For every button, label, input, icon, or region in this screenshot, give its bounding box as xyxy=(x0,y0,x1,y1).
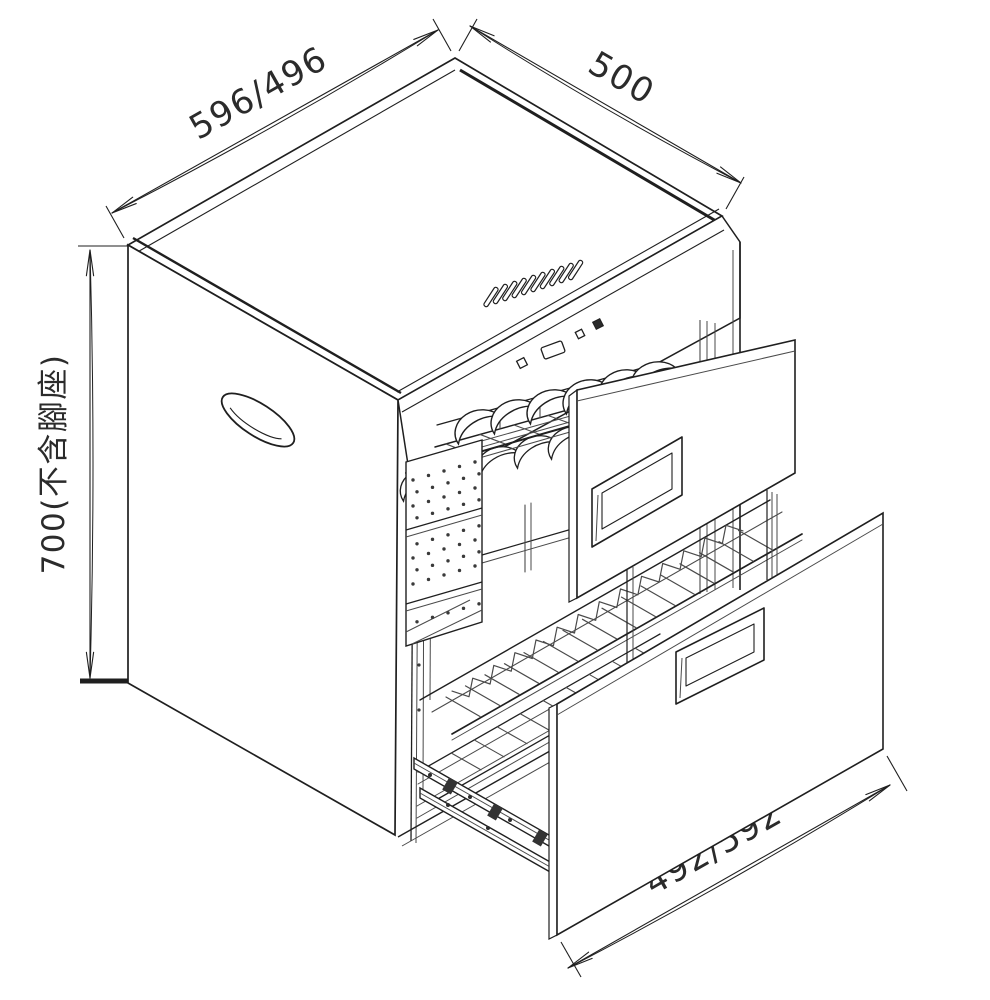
perforation-dot xyxy=(446,533,449,536)
perforation-dot xyxy=(427,500,430,503)
perforation-dot xyxy=(473,486,476,489)
cutlery-basket xyxy=(406,440,482,646)
perforation-dot xyxy=(462,477,465,480)
dimension-arrowhead xyxy=(869,785,890,801)
perforation-dot xyxy=(458,465,461,468)
perforation-dot xyxy=(427,552,430,555)
perforation-dot xyxy=(446,559,449,562)
rack-rung xyxy=(641,586,675,606)
perforation-dot xyxy=(473,564,476,567)
dimension-arrowhead xyxy=(112,204,136,213)
perforation-dot xyxy=(462,555,465,558)
perforation-dot xyxy=(446,481,449,484)
pin-hole xyxy=(417,708,420,711)
shelf-rung xyxy=(497,727,527,744)
rack-rung xyxy=(563,630,597,650)
extension-line xyxy=(459,19,477,51)
shelf-rung xyxy=(474,740,504,757)
perforation-dot xyxy=(462,607,465,610)
drawing-canvas: 596/496 500 700(不含腳座) 492/592 xyxy=(0,0,990,1000)
perforation-dot xyxy=(442,469,445,472)
rack-rung xyxy=(661,575,695,595)
perforation-dot xyxy=(415,542,418,545)
perforation-dot xyxy=(477,524,480,527)
perforation-dot xyxy=(477,602,480,605)
perforation-dot xyxy=(446,611,449,614)
rail-rivet xyxy=(486,826,490,830)
dimension-arrowhead xyxy=(717,173,741,183)
perforation-dot xyxy=(415,490,418,493)
perforation-dot xyxy=(462,529,465,532)
perforation-dot xyxy=(477,498,480,501)
dimension-arrowhead xyxy=(470,26,494,36)
shelf-rung xyxy=(520,714,550,731)
perforation-dot xyxy=(462,503,465,506)
perforation-dot xyxy=(458,491,461,494)
pin-hole xyxy=(417,663,420,666)
upper-drawer-edge-sliver xyxy=(569,390,577,602)
extension-line xyxy=(726,177,744,209)
shelf-rung xyxy=(451,753,481,770)
perforation-dot xyxy=(411,556,414,559)
dimension-arrowhead xyxy=(721,167,741,183)
rack-rung xyxy=(583,619,617,639)
rail-rivet xyxy=(428,773,432,777)
rail-rivet xyxy=(446,803,450,807)
rack-rung xyxy=(524,653,558,673)
rack-rung xyxy=(719,542,753,562)
dimension-label-top-depth: 500 xyxy=(581,44,661,113)
extension-line xyxy=(433,19,451,51)
dimension-arrowhead xyxy=(417,30,438,46)
perforation-dot xyxy=(427,578,430,581)
lower-drawer-edge-sliver xyxy=(549,704,557,939)
perforation-dot xyxy=(431,512,434,515)
perforation-dot xyxy=(415,568,418,571)
perforation-dot xyxy=(458,569,461,572)
perforation-dot xyxy=(411,504,414,507)
perforation-dot xyxy=(442,495,445,498)
dimension-label-height: 700(不含腳座) xyxy=(36,354,72,575)
perforation-dot xyxy=(477,472,480,475)
perforation-dot xyxy=(477,550,480,553)
dimension-arrowhead xyxy=(470,26,490,42)
perforation-dot xyxy=(442,573,445,576)
rack-rung xyxy=(680,564,714,584)
dimension-arrowhead xyxy=(866,785,890,795)
rail-rivet xyxy=(508,818,512,822)
perforation-dot xyxy=(411,582,414,585)
perforation-dot xyxy=(431,616,434,619)
perforation-dot xyxy=(431,538,434,541)
perforation-dot xyxy=(446,507,449,510)
perforation-dot xyxy=(473,460,476,463)
perforation-dot xyxy=(442,547,445,550)
dimension-arrowhead xyxy=(414,30,438,39)
extension-line xyxy=(561,942,581,977)
rack-rung xyxy=(505,664,539,684)
perforation-dot xyxy=(458,543,461,546)
rack-rung xyxy=(700,553,734,573)
perforation-dot xyxy=(411,478,414,481)
rail-rivet xyxy=(468,795,472,799)
perforation-dot xyxy=(415,620,418,623)
rack-rung xyxy=(446,697,480,717)
extension-line xyxy=(887,756,907,791)
dimension-label-top-width: 596/496 xyxy=(183,39,335,149)
perforation-dot xyxy=(427,474,430,477)
perforation-dot xyxy=(415,516,418,519)
perforation-dot xyxy=(473,538,476,541)
sterilizer-cabinet-technical-drawing: 596/496 500 700(不含腳座) 492/592 xyxy=(0,0,990,1000)
rack-rung xyxy=(602,608,636,628)
perforation-dot xyxy=(431,486,434,489)
dimension-arrowhead xyxy=(112,197,133,213)
perforation-dot xyxy=(431,564,434,567)
